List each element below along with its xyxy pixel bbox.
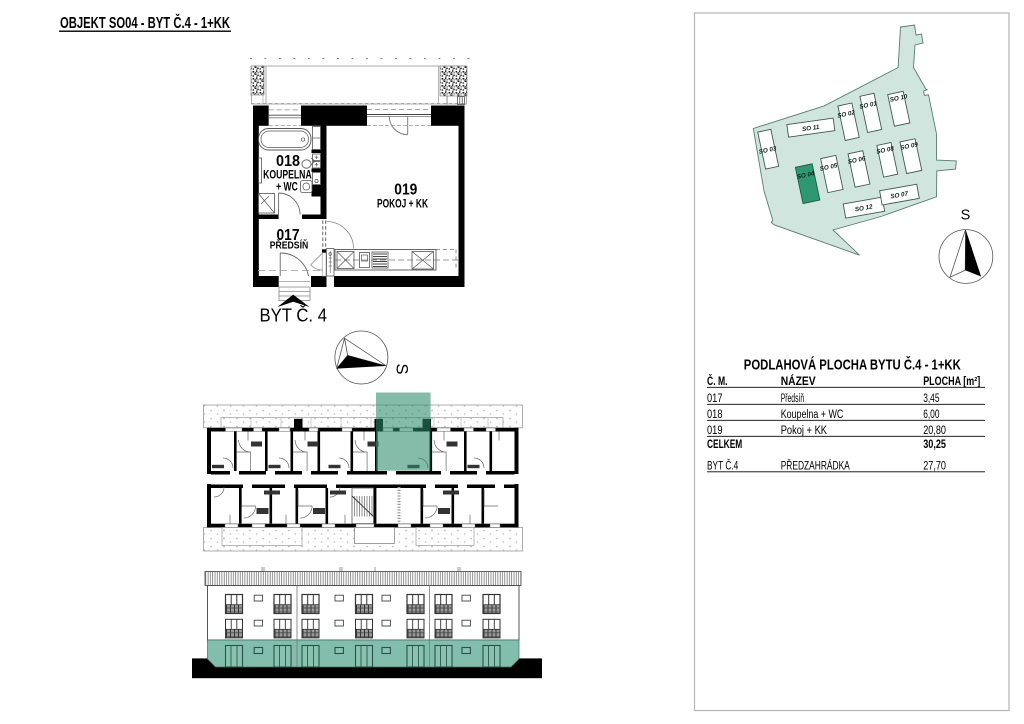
svg-text:Č. M.: Č. M.	[707, 375, 728, 388]
svg-text:PLOCHA [m²]: PLOCHA [m²]	[923, 376, 980, 388]
svg-text:S: S	[393, 364, 411, 375]
svg-text:OBJEKT SO04 - BYT Č.4 - 1+KK: OBJEKT SO04 - BYT Č.4 - 1+KK	[60, 14, 231, 32]
svg-text:NÁZEV: NÁZEV	[781, 375, 816, 388]
svg-text:27,70: 27,70	[923, 460, 946, 472]
svg-text:CELKEM: CELKEM	[707, 439, 742, 451]
svg-text:3,45: 3,45	[923, 393, 939, 405]
svg-text:BYT Č. 4: BYT Č. 4	[260, 305, 328, 326]
svg-text:6,00: 6,00	[923, 409, 939, 421]
svg-text:30,25: 30,25	[923, 439, 946, 451]
svg-text:BYT Č.4: BYT Č.4	[707, 459, 739, 472]
svg-text:S: S	[961, 208, 971, 224]
svg-text:Pokoj + KK: Pokoj + KK	[781, 425, 828, 437]
svg-text:019: 019	[707, 425, 723, 437]
svg-text:019: 019	[394, 182, 417, 199]
svg-text:PODLAHOVÁ PLOCHA BYTU Č.4 - 1+: PODLAHOVÁ PLOCHA BYTU Č.4 - 1+KK	[744, 356, 961, 374]
svg-text:20,80: 20,80	[923, 425, 946, 437]
svg-text:017: 017	[707, 393, 723, 405]
svg-text:+ WC: + WC	[276, 182, 298, 194]
svg-text:Koupelna + WC: Koupelna + WC	[781, 409, 844, 421]
svg-text:POKOJ + KK: POKOJ + KK	[377, 199, 429, 211]
svg-text:018: 018	[276, 153, 300, 170]
svg-text:PŘEDSÍŇ: PŘEDSÍŇ	[270, 239, 309, 252]
svg-text:Předsíň: Předsíň	[781, 393, 805, 405]
svg-text:KOUPELNA: KOUPELNA	[263, 170, 312, 182]
svg-text:018: 018	[707, 409, 723, 421]
svg-text:PŘEDZAHRÁDKA: PŘEDZAHRÁDKA	[781, 459, 850, 472]
